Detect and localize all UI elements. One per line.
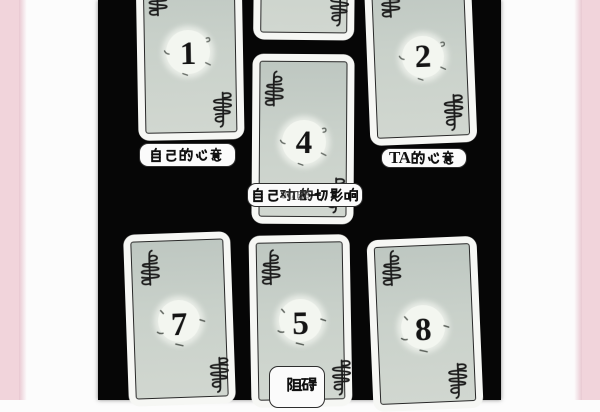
svg-text:JI7E8: JI7E8 [281,190,310,202]
svg-text:TA: TA [389,150,412,166]
